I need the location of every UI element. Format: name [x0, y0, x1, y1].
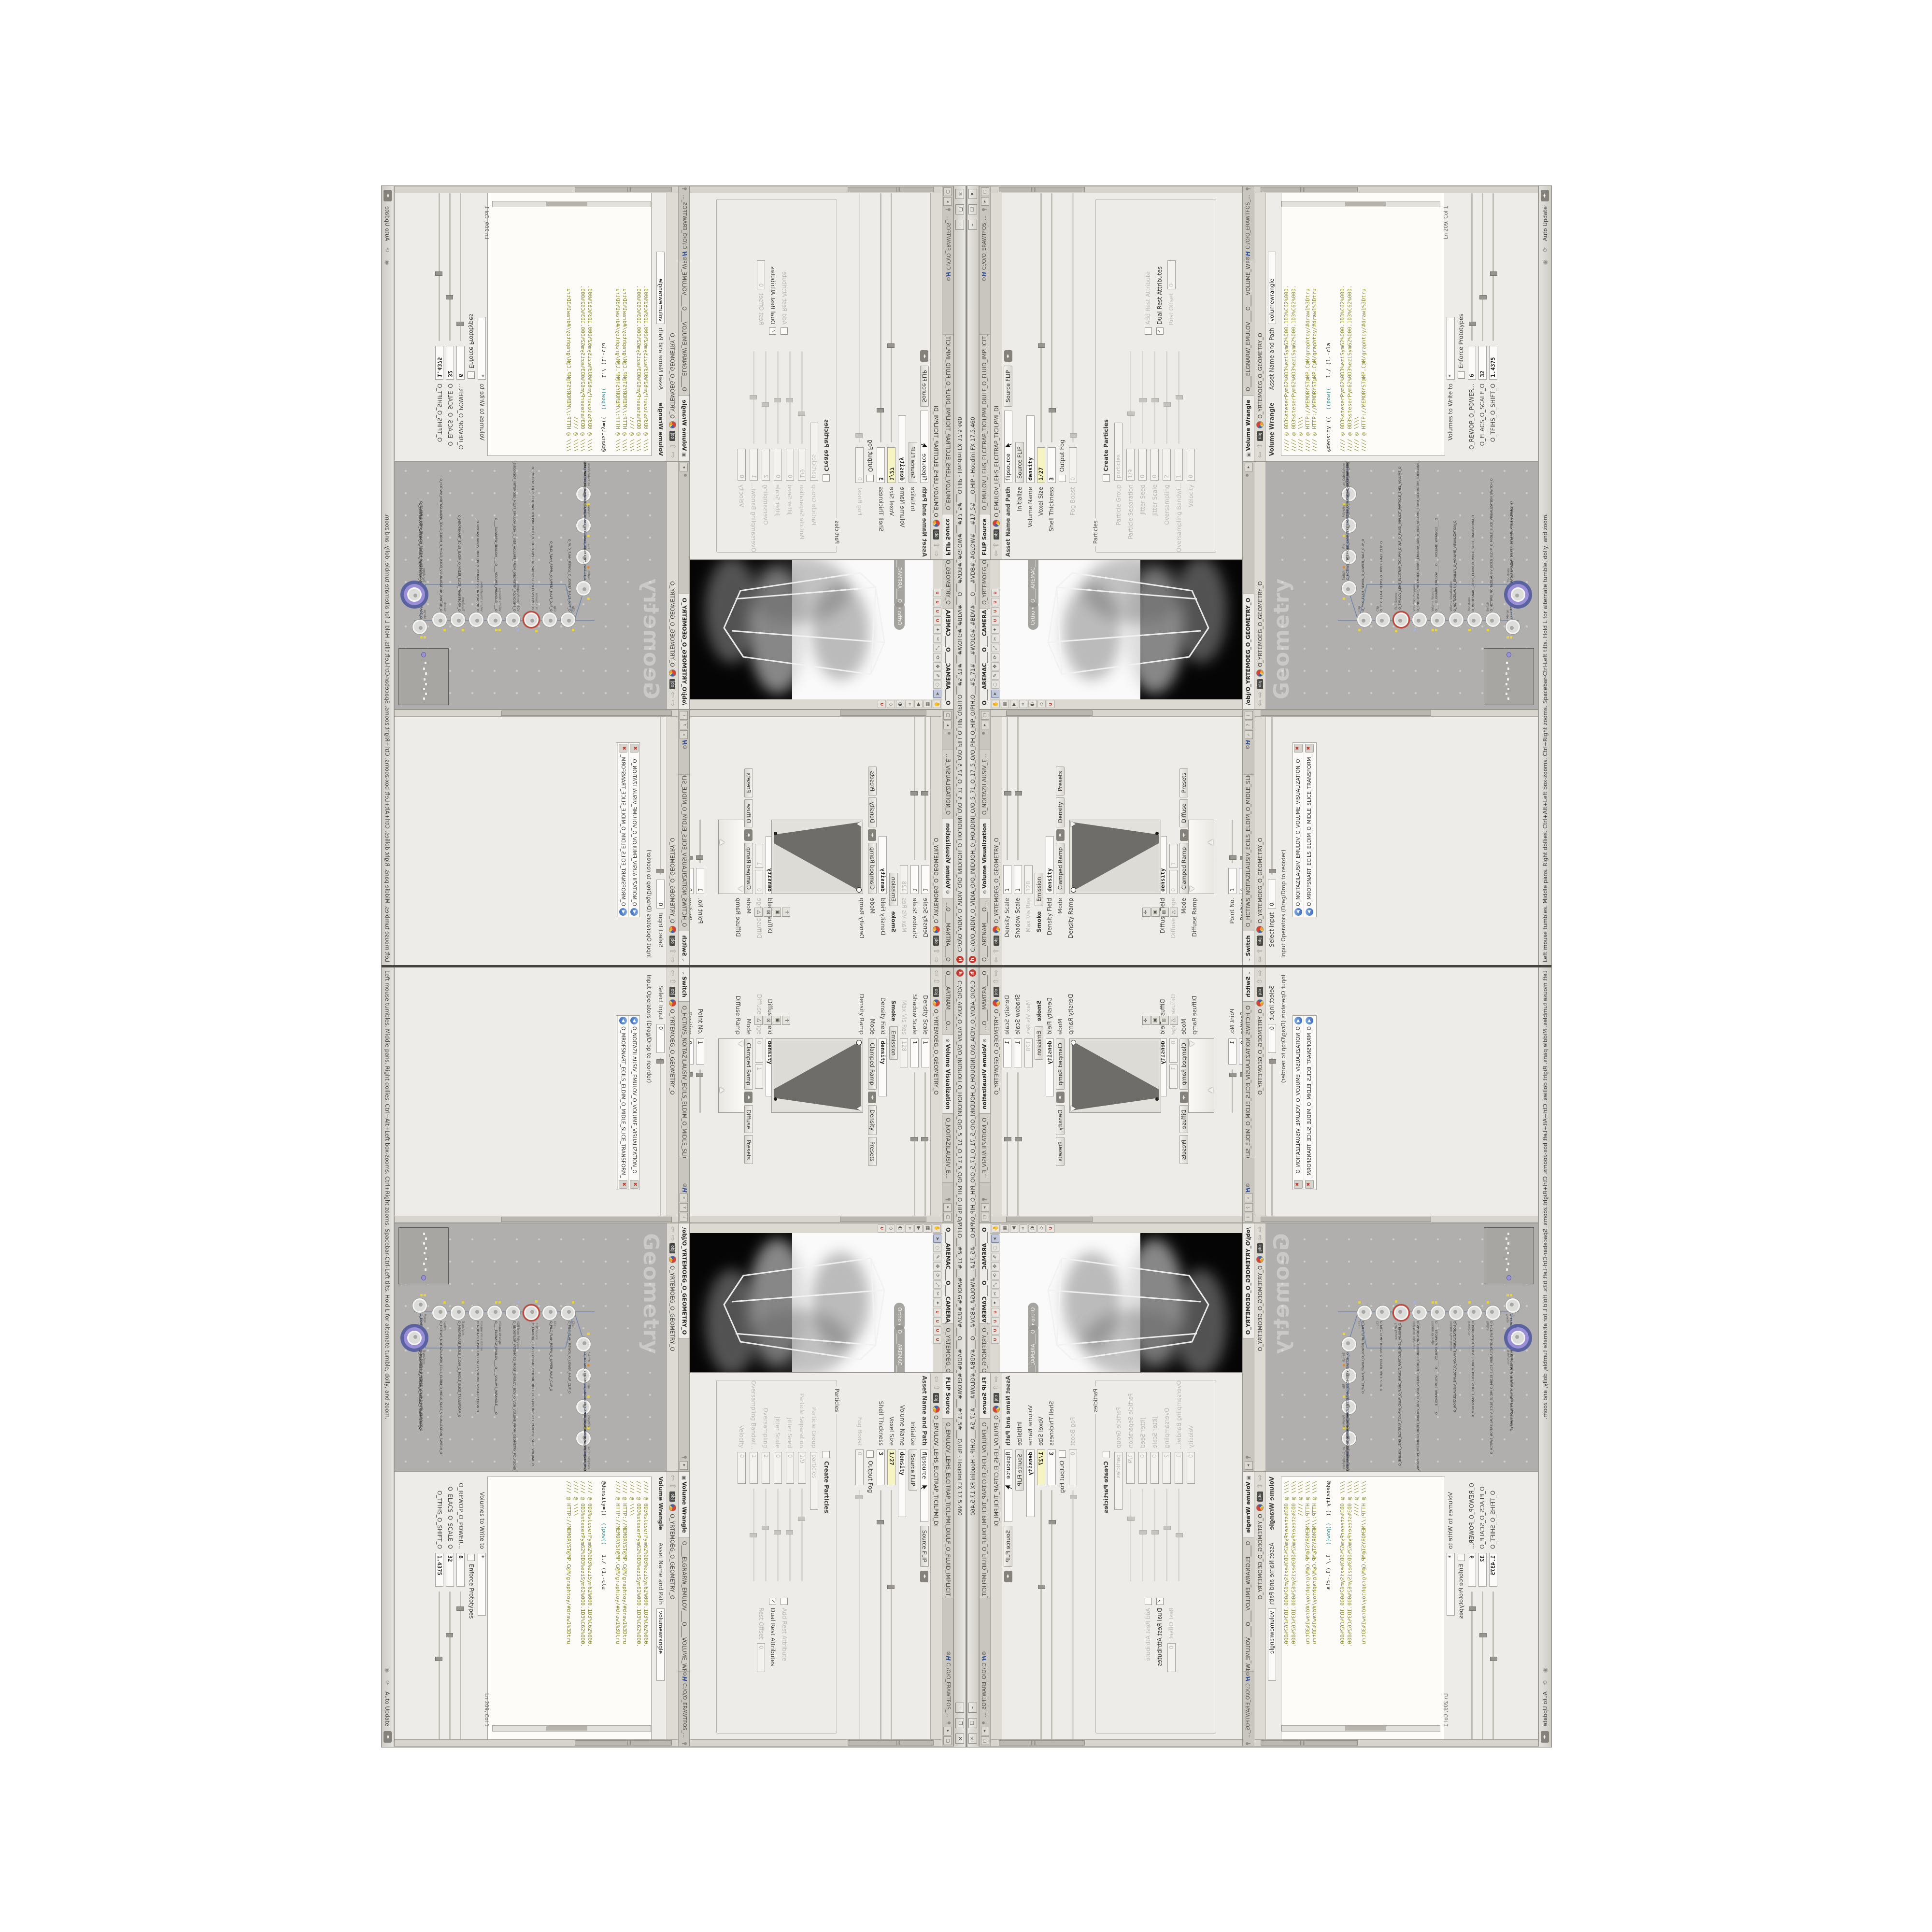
context-chip[interactable]: obj	[934, 529, 939, 540]
create-particles-checkbox[interactable]	[1103, 474, 1110, 482]
context-chip[interactable]: obj	[670, 679, 676, 689]
shell-thickness-field[interactable]: 3	[1048, 1449, 1056, 1485]
lasso-tool-icon[interactable]: ◌	[991, 1244, 999, 1252]
jitter-scale-slider[interactable]	[777, 351, 779, 444]
shadow-scale-slider[interactable]	[1017, 717, 1019, 860]
create-particles-checkbox[interactable]	[823, 474, 830, 482]
position-field[interactable]: 0	[1239, 1038, 1243, 1065]
tab-geometry[interactable]: O_YRTEMOEG_O_GEOMETRY_O	[980, 560, 990, 609]
pane-expand-button[interactable]: ▸	[943, 721, 952, 729]
tab-volume-visualization[interactable]: ⊙Volume Visualization	[980, 1035, 990, 1114]
shell-thickness-slider[interactable]	[1051, 1490, 1052, 1739]
asset-name-field[interactable]: volumewrangle	[1268, 1608, 1276, 1681]
dual-rest-checkbox[interactable]: ✓	[1156, 327, 1164, 335]
select-input-field[interactable]: 0	[657, 1024, 665, 1053]
node-path[interactable]: O_YRTEMOEG_O_GEOMETRY_O	[993, 1009, 1000, 1095]
asset-splitter-button[interactable]: ◂▸	[1004, 350, 1012, 362]
statusbar-splitter-button[interactable]: ◂▸	[384, 190, 392, 201]
voxel-size-field[interactable]: 1/27	[1037, 447, 1045, 483]
network-node[interactable]: Volume VisualizationO_NOITAZILAUSIV_EMUL…	[471, 614, 483, 627]
select-input-field[interactable]: 0	[1268, 880, 1276, 909]
ramp2-handle-flag[interactable]	[1190, 1041, 1194, 1047]
asset-type-button[interactable]: Source FLIP	[1004, 1526, 1012, 1567]
scale-field[interactable]: 32	[1478, 346, 1487, 380]
code-scrollbar[interactable]	[492, 1725, 651, 1732]
grid-toggle-icon[interactable]: ⌗	[1019, 1224, 1027, 1233]
asset-name-field[interactable]: volumewrangle	[657, 252, 665, 324]
network-node-display[interactable]: TransformO_MROFSNART_TLUSER_O_RESULT_TRA…	[409, 589, 422, 602]
tab-wrangle-node-path[interactable]: O____ELGNARW_EMULOV____O____VOLUME_WRANG…	[679, 261, 689, 395]
remove-input-button[interactable]: ✖	[630, 1180, 639, 1189]
nav-forward-icon[interactable]: ⇨	[669, 692, 676, 698]
oversampling-field[interactable]: 2	[1163, 1452, 1171, 1484]
max-vis-res-field[interactable]: 128	[900, 865, 909, 894]
jitter-scale-field[interactable]: 0	[774, 1452, 782, 1484]
code-scrollbar[interactable]	[1281, 1725, 1440, 1732]
gear-icon[interactable]: ⚙	[942, 1651, 953, 1656]
gear-icon[interactable]: ⚙	[1243, 256, 1254, 261]
viewport-render-area[interactable]: Ortho ▾ O____AREMAC____O...	[1000, 1233, 1242, 1372]
back-arrow-icon[interactable]: ⇦	[993, 970, 1000, 976]
remove-input-button[interactable]: ✖	[1294, 1180, 1303, 1189]
ramp2-handle-flag[interactable]	[1190, 886, 1194, 892]
enforce-prototypes-checkbox[interactable]	[1458, 371, 1465, 379]
shade-mode-icon[interactable]: ◐	[896, 700, 904, 709]
presets2-button[interactable]: Presets	[744, 1135, 753, 1164]
pane-expand-button[interactable]: ▸	[981, 721, 989, 729]
density-field[interactable]: density	[1046, 1038, 1054, 1096]
help-icon[interactable]: ?	[680, 1203, 688, 1212]
oversampling-bw-slider[interactable]	[753, 351, 754, 444]
context-chip[interactable]: obj	[994, 1393, 999, 1403]
mirror-seam-horizontal[interactable]	[382, 965, 1551, 967]
vex-code-editor[interactable]: //// @ 0D3%steserPym62%0D3%eziSym62%000.…	[487, 187, 652, 456]
position-slider[interactable]	[1242, 717, 1243, 863]
jitter-seed-slider[interactable]	[789, 1489, 791, 1581]
camera-menu-pill[interactable]: O____AREMAC____O...	[1028, 560, 1038, 608]
pane-expand-button[interactable]: ▸	[1245, 1461, 1253, 1470]
tab-switch[interactable]: ⌄Switch	[1243, 967, 1254, 1002]
handles-tool-icon[interactable]: ✦	[934, 1299, 942, 1307]
snap-point-magnet-icon[interactable]: ∪	[934, 607, 942, 615]
voxel-size-field[interactable]: 1/27	[888, 1449, 896, 1485]
tab-flip-node-path[interactable]: O_EMULOV_LEHS_ELCITRAP_TICILPMI_DIULF_O_…	[980, 334, 990, 514]
code-scrollbar[interactable]	[1281, 201, 1440, 207]
particle-group-field[interactable]: particles	[810, 423, 818, 481]
ramp-tri-button[interactable]: △	[754, 1016, 763, 1025]
wrangle-scrollbar[interactable]	[1255, 186, 1538, 193]
add-rest-checkbox[interactable]	[781, 1598, 788, 1605]
nav-back-icon[interactable]: ⇦	[1256, 700, 1264, 706]
context-chip[interactable]: obj	[670, 936, 676, 946]
folder-tab-emission[interactable]: Emission	[1035, 1026, 1043, 1060]
volume-name-field[interactable]: density	[898, 415, 907, 483]
view-tool-icon[interactable]: ✋	[933, 1224, 941, 1233]
network-node[interactable]: VDB from PolygonsO_SNOGYLOP_YRTEMOEG_MOR…	[1412, 614, 1425, 627]
snap-prim-magnet-icon[interactable]: ∪	[934, 589, 942, 597]
tab-switch-node-path[interactable]: O_HCTIWS_NOITAZILAUSIV_ECILS_ELDIM_O_MID…	[679, 774, 689, 931]
flipbook-icon[interactable]: ▶	[914, 700, 923, 709]
density-scale-slider[interactable]	[925, 717, 926, 860]
oversampling-field[interactable]: 2	[1163, 449, 1171, 481]
close-button[interactable]: ✕	[956, 189, 965, 199]
ramp-point-dot[interactable]	[1155, 1097, 1159, 1101]
ramp-add-button[interactable]: ✛	[782, 908, 790, 917]
snap-magnet-icon[interactable]: ∪	[878, 1224, 886, 1233]
nav-back-icon[interactable]: ⇦	[669, 1226, 676, 1233]
gear-icon[interactable]: ⚙	[980, 277, 990, 282]
context-chip[interactable]: obj	[934, 1393, 939, 1403]
info-icon[interactable]: i	[680, 1213, 688, 1222]
scale-slider[interactable]	[1482, 193, 1483, 341]
back-arrow-icon[interactable]: ⇦	[669, 452, 676, 458]
pane-max-button[interactable]: ▢	[943, 1213, 952, 1222]
shift-field[interactable]: 1.4375	[436, 1553, 444, 1587]
network-node[interactable]: VDB from PolygonsO_SNOGYLOP_YRTEMOEG_MOR…	[508, 1306, 520, 1318]
jitter-seed-slider[interactable]	[1142, 1489, 1143, 1581]
ramp-splitter-button[interactable]: ◂▸	[1056, 829, 1065, 841]
network-node[interactable]: SwitchO_HCTIWS_YRTEMOEG_LANRETXE_LANRETN…	[578, 583, 591, 596]
tab-camera[interactable]: O____AREMAC____O____CAMERA____O...	[942, 1223, 953, 1324]
select-input-slider[interactable]	[1271, 1058, 1273, 1216]
presets2-button[interactable]: Presets	[1179, 768, 1188, 797]
pane-max-button[interactable]: ▢	[981, 711, 989, 720]
snap-point-magnet-icon[interactable]: ∪	[991, 1317, 999, 1325]
fog-boost-field[interactable]: 0	[1069, 447, 1077, 483]
network-node-error[interactable]: FLIP SourceO_EMULOV_LEHS_ELCITRAP_TICILP…	[1394, 1306, 1406, 1318]
close-button[interactable]: ✕	[968, 189, 977, 199]
diffuse-ramp-widget[interactable]	[1188, 1038, 1214, 1113]
max-vis-res-field[interactable]: 128	[900, 1038, 909, 1067]
ramp-splitter-button[interactable]: ◂▸	[868, 829, 877, 841]
tab-switch-node-path[interactable]: O_HCTIWS_NOITAZILAUSIV_ECILS_ELDIM_O_MID…	[1243, 774, 1254, 931]
volviz-scrollbar[interactable]	[991, 1216, 1242, 1222]
ramp-box-button[interactable]: ▣	[773, 1016, 781, 1025]
back-arrow-icon[interactable]: ⇦	[1256, 1475, 1264, 1481]
folder-tab-emission[interactable]: Emission	[889, 1026, 898, 1060]
select-input-slider[interactable]	[1271, 717, 1273, 875]
list-item[interactable]: ◀ O_MROFSNART_ECILS_ELDIM_O_MIDLE_SLICE_…	[1304, 743, 1315, 917]
flipbook-icon[interactable]: ▶	[914, 1224, 923, 1233]
tab-network-path[interactable]: /obj/O_YRTEMOEG_O_GEOMETRY_O	[679, 594, 689, 709]
shift-field[interactable]: 1.4375	[436, 346, 444, 380]
ramp2-handle-flag2[interactable]	[720, 839, 724, 845]
list-item[interactable]: ◀ O_MROFSNART_ECILS_ELDIM_O_MIDLE_SLICE_…	[617, 1016, 628, 1190]
tab-volume-visualization-path[interactable]: O_NOITAZILAUSIV_E...	[942, 750, 953, 819]
enforce-prototypes-checkbox[interactable]	[468, 1554, 475, 1561]
ramp-tri-button[interactable]: △	[754, 908, 763, 917]
camera-menu-pill[interactable]: O____AREMAC____O...	[1028, 1325, 1038, 1372]
particle-separation-slider[interactable]	[1130, 351, 1131, 444]
tab-volume-wrangle[interactable]: ▣Volume Wrangle	[1243, 1472, 1254, 1537]
input-arrow-icon[interactable]: ◀	[1294, 1017, 1302, 1024]
pin-icon[interactable]	[946, 207, 951, 212]
context-chip[interactable]: obj	[994, 936, 999, 946]
position-field[interactable]: 0	[690, 1038, 694, 1065]
network-node[interactable]: VDB from PolygonsO_SNOGYLOP_YRTEMOEG_MOR…	[1412, 1306, 1425, 1318]
voxel-size-slider[interactable]	[891, 1490, 893, 1739]
switch-scrollbar[interactable]	[395, 1216, 678, 1222]
rotate-tool-icon[interactable]: ⟳	[991, 653, 999, 661]
node-path[interactable]: O_YRTEMOEG_O_GEOMETRY_O	[933, 838, 940, 923]
ramp-point-dot[interactable]	[774, 1097, 777, 1101]
jitter-scale-field[interactable]: 0	[1151, 1452, 1159, 1484]
camera-menu-pill[interactable]: O____AREMAC____O...	[894, 560, 905, 608]
lasso-tool-icon[interactable]: ◌	[934, 1244, 942, 1252]
channel-dropdown[interactable]: Density	[1056, 1105, 1065, 1135]
tab-volume-wrangle[interactable]: ▣Volume Wrangle	[1243, 395, 1254, 461]
power-field[interactable]: 6	[1468, 1553, 1476, 1587]
tab-switch[interactable]: ⌄Switch	[679, 967, 689, 1002]
scale-field[interactable]: 32	[446, 346, 455, 380]
up-arrow-icon[interactable]: ⇧	[993, 979, 1000, 985]
diffuse-range-min[interactable]: 0	[1169, 1038, 1178, 1063]
back-arrow-icon[interactable]: ⇦	[669, 970, 676, 976]
shadow-scale-slider[interactable]	[914, 717, 916, 860]
tab-flip-node-path[interactable]: O_EMULOV_LEHS_ELCITRAP_TICILPMI_DIULF_O_…	[942, 334, 953, 514]
ramp-splitter-button[interactable]: ◂▸	[1056, 1092, 1065, 1103]
switch-scrollbar[interactable]	[1255, 710, 1538, 717]
pane-expand-button[interactable]: ▸	[943, 1727, 952, 1735]
up-arrow-icon[interactable]: ⇧	[669, 443, 676, 450]
camera-menu-pill[interactable]: O____AREMAC____O...	[894, 1325, 905, 1372]
tab-volume-visualization-path[interactable]: O_NOITAZILAUSIV_E...	[980, 750, 990, 819]
point-no-slider[interactable]	[700, 820, 701, 863]
brush-tool-icon[interactable]: ✎	[991, 1253, 999, 1261]
context-chip[interactable]: obj	[1257, 1492, 1263, 1502]
tab-flip-source[interactable]: FLIP Source	[980, 1373, 990, 1419]
network-minimap[interactable]	[1484, 648, 1534, 705]
network-node[interactable]: Volume VisualizationO_NOITAZILAUSIV_EMUL…	[1449, 614, 1462, 627]
asset-type-button[interactable]: Source FLIP	[920, 1526, 929, 1567]
render-view-icon[interactable]: ▦	[1001, 700, 1009, 709]
ramp-del-button[interactable]: ⊠	[1161, 908, 1169, 917]
volumes-field[interactable]: *	[478, 1553, 486, 1616]
fog-boost-field[interactable]: 0	[1069, 1449, 1077, 1485]
up-arrow-icon[interactable]: ⇧	[1256, 979, 1264, 985]
help-icon[interactable]: ?	[1245, 721, 1253, 729]
diffuse-range-max[interactable]: 1	[755, 844, 764, 868]
oversampling-bw-field[interactable]: 1	[1175, 449, 1183, 481]
create-particles-checkbox[interactable]	[1103, 1451, 1110, 1458]
nav-forward-icon[interactable]: ⇨	[1256, 1235, 1264, 1241]
node-path[interactable]: O_YRTEMOEG_O_GEOMETRY_O	[1257, 581, 1264, 667]
pin-icon[interactable]	[682, 1455, 687, 1460]
statusbar-splitter-button[interactable]: ◂▸	[1541, 1731, 1549, 1743]
remove-input-button[interactable]: ✖	[1294, 744, 1303, 753]
code-scrollbar[interactable]	[492, 201, 651, 207]
maximize-button[interactable]: ❐	[968, 204, 977, 214]
up-arrow-icon[interactable]: ⇧	[993, 542, 1000, 548]
vex-code-editor[interactable]: //// @ 0D3%steserPym62%0D3%eziSym62%000.…	[1281, 187, 1445, 456]
wrangle-scrollbar[interactable]	[395, 1739, 678, 1746]
volviz-scrollbar[interactable]	[690, 1216, 941, 1222]
network-node[interactable]: TransformO_MROFSNART_ECILS_ELDIM_O_MIDLE…	[453, 1306, 465, 1318]
shift-field[interactable]: 1.4375	[1489, 1553, 1497, 1587]
scale-slider[interactable]	[450, 193, 451, 341]
scale-tool-icon[interactable]: ⤢	[934, 644, 942, 652]
pin-icon[interactable]	[682, 473, 687, 478]
pane-expand-button[interactable]: ▸	[1245, 463, 1253, 471]
remove-input-button[interactable]: ✖	[1305, 744, 1314, 753]
ramp2-handle-flag2[interactable]	[1208, 839, 1213, 845]
ramp2-handle-flag[interactable]	[738, 886, 743, 892]
power-slider[interactable]	[460, 1591, 462, 1739]
up-arrow-icon[interactable]: ⇧	[933, 1385, 940, 1391]
move-tool-icon[interactable]: ✥	[934, 662, 942, 670]
wrangle-scrollbar[interactable]	[395, 186, 678, 193]
gear-icon[interactable]: ⚙	[679, 256, 689, 261]
pin-icon[interactable]	[946, 1197, 951, 1202]
ramp-point-dot[interactable]	[1155, 832, 1159, 835]
up-arrow-icon[interactable]: ⇧	[669, 948, 676, 954]
asset-type-button[interactable]: Source FLIP	[1004, 366, 1012, 407]
network-node[interactable]: SwitchO_HCTIWS_NOITAZILAUSIV_ECILS_ELDIM…	[434, 1306, 447, 1318]
select-input-slider[interactable]	[660, 717, 662, 875]
node-path[interactable]: O_EMULOV_LEHS_ELCITRAP_TICILPMI_DI	[993, 406, 1000, 517]
dual-rest-checkbox[interactable]: ✓	[769, 1598, 777, 1605]
pin-icon[interactable]	[682, 1741, 687, 1746]
output-fog-checkbox[interactable]	[867, 1450, 874, 1458]
volume-name-field[interactable]: density	[898, 1449, 907, 1517]
fog-boost-field[interactable]: 0	[856, 1449, 864, 1485]
tab-network-path[interactable]: /obj/O_YRTEMOEG_O_GEOMETRY_O	[1243, 1223, 1254, 1339]
rest-offset-field[interactable]: 0	[1167, 260, 1176, 289]
ramp2-splitter-button[interactable]: ◂▸	[1180, 829, 1188, 841]
scale-tool-icon[interactable]: ⤢	[991, 1280, 999, 1289]
density-ramp-widget[interactable]	[1069, 820, 1161, 894]
maximize-button[interactable]: ❐	[956, 1718, 965, 1728]
flipbook-icon[interactable]: ▶	[1010, 700, 1018, 709]
back-arrow-icon[interactable]: ⇦	[1256, 956, 1264, 963]
presets2-button[interactable]: Presets	[1179, 1135, 1188, 1164]
position-slider[interactable]	[690, 717, 691, 863]
network-minimap[interactable]	[398, 1227, 449, 1284]
oversampling-bw-field[interactable]: 1	[750, 449, 758, 481]
initialize-dropdown[interactable]: Source FLIP	[1015, 442, 1024, 483]
voxel-size-field[interactable]: 1/27	[888, 447, 896, 483]
presets-button[interactable]: Presets	[1056, 1137, 1065, 1166]
add-rest-checkbox[interactable]	[1145, 327, 1152, 335]
velocity-field[interactable]: 0	[1187, 449, 1195, 481]
magnifier-icon[interactable]: ⌕	[1245, 1193, 1253, 1202]
shift-slider[interactable]	[439, 1591, 440, 1739]
tab-flip-node-path[interactable]: O_EMULOV_LEHS_ELCITRAP_TICILPMI_DIULF_O_…	[942, 1419, 953, 1598]
tab-volume-visualization[interactable]: ⊙Volume Visualization	[980, 819, 990, 898]
scale-tool-icon[interactable]: ⤢	[934, 1280, 942, 1289]
create-particles-checkbox[interactable]	[823, 1451, 830, 1458]
context-chip[interactable]: obj	[670, 987, 676, 997]
up-arrow-icon[interactable]: ⇧	[1256, 443, 1264, 450]
up-arrow-icon[interactable]: ⇧	[1256, 948, 1264, 954]
snap-magnet-icon[interactable]: ∪	[878, 700, 886, 709]
position-field[interactable]: 0	[1239, 868, 1243, 894]
switch-scrollbar[interactable]	[1255, 1216, 1538, 1222]
snap-grid-magnet-icon[interactable]: ∪	[934, 616, 942, 625]
auto-update-selector[interactable]: Auto Update	[384, 206, 391, 241]
folder-tab-smoke[interactable]: Smoke	[1035, 996, 1043, 1025]
node-path[interactable]: O_YRTEMOEG_O_GEOMETRY_O	[669, 333, 676, 419]
fog-boost-field[interactable]: 0	[856, 447, 864, 483]
pane-max-button[interactable]: ▢	[981, 187, 989, 196]
flip-scrollbar[interactable]	[991, 186, 1242, 193]
rest-offset-field[interactable]: 0	[757, 1643, 766, 1672]
view-tool-icon[interactable]: ✋	[992, 700, 1000, 709]
refresh-icon[interactable]: ⟳	[384, 1679, 392, 1687]
power-field[interactable]: 6	[457, 346, 465, 380]
flip-scrollbar[interactable]	[690, 1739, 941, 1746]
power-slider[interactable]	[460, 193, 462, 341]
list-item[interactable]: ◀ O_MROFSNART_ECILS_ELDIM_O_MIDLE_SLICE_…	[1304, 1016, 1315, 1190]
scale-tool-icon[interactable]: ⤢	[991, 644, 999, 652]
particle-group-field[interactable]: particles	[1114, 1452, 1122, 1510]
pane-max-button[interactable]: ▢	[943, 711, 952, 720]
snap-prim-magnet-icon[interactable]: ∪	[934, 1335, 942, 1344]
move-tool-icon[interactable]: ✥	[991, 1262, 999, 1270]
network-node[interactable]: MergeO_ECAFRUS_HTIW_EMULOV_EGREM_O_MERGE…	[1506, 622, 1518, 634]
ramp-splitter-button[interactable]: ◂▸	[868, 1092, 877, 1103]
up-arrow-icon[interactable]: ⇧	[993, 1385, 1000, 1391]
shadow-scale-field[interactable]: 1	[1014, 1038, 1022, 1067]
ramp-box-button[interactable]: ▣	[1151, 1016, 1160, 1025]
select-input-field[interactable]: 0	[1268, 1024, 1276, 1053]
context-chip[interactable]: obj	[1257, 1243, 1263, 1253]
snap-prim-magnet-icon[interactable]: ∪	[991, 1335, 999, 1344]
input-arrow-icon[interactable]: ◀	[619, 908, 627, 916]
select-tool-icon[interactable]: ➤	[934, 690, 942, 698]
volume-name-field[interactable]: density	[1026, 415, 1035, 483]
scale-field[interactable]: 32	[446, 1553, 455, 1587]
channel2-dropdown[interactable]: Diffuse	[744, 1105, 753, 1133]
pin-icon[interactable]	[946, 731, 951, 736]
asset-splitter-button[interactable]: ◂▸	[1004, 1571, 1012, 1582]
refresh-icon[interactable]: ⟳	[1541, 246, 1549, 254]
pin-icon[interactable]	[946, 1720, 951, 1725]
network-node[interactable]: Volume WrangleO____ELGNARW_EMULOV____O__…	[489, 614, 502, 627]
minimize-button[interactable]: –	[956, 220, 965, 230]
network-minimap[interactable]	[398, 648, 449, 705]
list-item[interactable]: ◀ O_NOITAZILAUSIV_EMULOV_O_VOLUME_VISUAL…	[628, 1016, 639, 1190]
wire-mode-icon[interactable]: ◇	[887, 700, 895, 709]
network-node[interactable]: ClipO_PILC_FLAH_REPPU_O_UPPER_HALF_CLIP_…	[1376, 1306, 1388, 1318]
pin-icon[interactable]	[982, 1197, 987, 1202]
output-fog-checkbox[interactable]	[867, 475, 874, 482]
network-node[interactable]: MergeO_ECAFRUS_HTIW_EMULOV_EGREM_O_MERGE…	[414, 622, 427, 634]
tab-mantra[interactable]: O____ARTNAM____O...	[942, 898, 953, 966]
mode-dropdown[interactable]: Clamped Ramp	[1056, 843, 1065, 894]
initialize-dropdown[interactable]: Source FLIP	[1015, 1449, 1024, 1491]
channel2-dropdown[interactable]: Diffuse	[1179, 799, 1188, 827]
node-path[interactable]: O_YRTEMOEG_O_GEOMETRY_O	[669, 838, 676, 923]
flip-scrollbar[interactable]	[991, 1739, 1242, 1746]
ramp-point-dot[interactable]	[774, 832, 777, 835]
diffuse-range-max[interactable]: 1	[755, 1065, 764, 1089]
density-ramp-widget[interactable]	[1069, 1038, 1161, 1113]
shadow-scale-slider[interactable]	[914, 1072, 916, 1216]
remove-input-button[interactable]: ✖	[619, 1180, 627, 1189]
diffuse-ramp-widget[interactable]	[718, 820, 744, 894]
lasso-tool-icon[interactable]: ◌	[934, 681, 942, 689]
refresh-icon[interactable]: ⟳	[384, 246, 392, 254]
shadow-scale-slider[interactable]	[1017, 1072, 1019, 1216]
network-node[interactable]: SwitchO_HCTIWS_YRTEMOEG_LANRETXE_LANRETN…	[1342, 1337, 1354, 1350]
up-arrow-icon[interactable]: ⇧	[933, 542, 940, 548]
asset-name-field[interactable]: volumewrangle	[657, 1608, 665, 1681]
tab-geometry[interactable]: O_YRTEMOEG_O_GEOMETRY_O	[942, 1324, 953, 1372]
snap-grid-magnet-icon[interactable]: ∪	[991, 1308, 999, 1316]
tab-volume-wrangle[interactable]: ▣Volume Wrangle	[679, 1472, 689, 1537]
ramp2-splitter-button[interactable]: ◂▸	[1180, 1092, 1188, 1103]
